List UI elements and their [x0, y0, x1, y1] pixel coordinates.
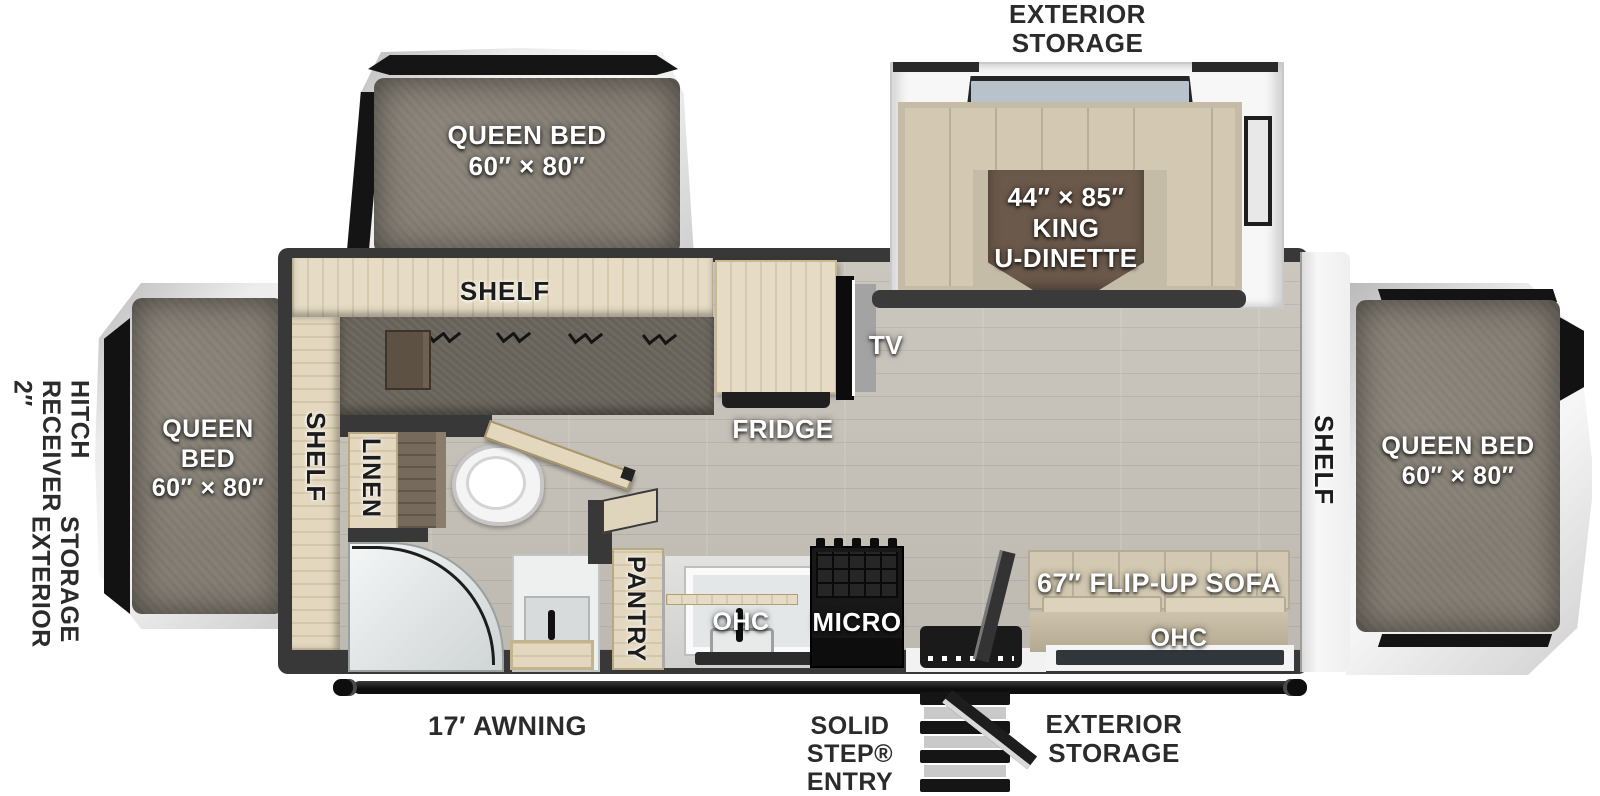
entry-mat — [920, 626, 1022, 668]
dinette-left-bench — [905, 108, 973, 286]
awning-label: 17′ AWNING — [425, 712, 590, 742]
dinette-right-bench — [1167, 108, 1235, 286]
toilet-bowl — [466, 456, 526, 510]
stove-grate — [816, 552, 898, 598]
dinette-label: 44″ × 85″ KING U-DINETTE — [978, 182, 1154, 274]
bath-step-box — [510, 640, 594, 670]
slide-roof-edge-left — [893, 62, 979, 72]
tent-bed-top-window-band — [368, 55, 678, 75]
floorplan-canvas: 2″ RECEIVER HITCH EXTERIOR STORAGE EXTER… — [0, 0, 1600, 796]
hitch-storage-label: EXTERIOR STORAGE — [26, 516, 90, 676]
tent-bed-top-label: QUEEN BED 60″ × 80″ — [374, 120, 680, 181]
awning-cap-right — [1283, 679, 1307, 696]
tent-bed-front-label: QUEEN BED 60″ × 80″ — [132, 415, 284, 504]
left-shelf-label: SHELF — [300, 412, 331, 502]
tv-screen-edge — [852, 280, 855, 396]
tent-bed-rear-window-bottom — [1378, 634, 1552, 647]
fridge-base — [722, 392, 830, 408]
tent-bed-front-window — [104, 318, 130, 614]
pantry-label: PANTRY — [621, 556, 650, 662]
sofa-ohc-label: OHC — [1138, 624, 1220, 654]
sofa-label: 67″ FLIP-UP SOFA — [1030, 568, 1288, 600]
entry-mat-treads — [928, 656, 1014, 661]
fridge-label: FRIDGE — [718, 414, 848, 445]
fridge-cabinet — [715, 260, 837, 394]
slide-window — [1244, 116, 1272, 226]
slide-threshold — [872, 290, 1246, 308]
kitchen-ohc-label: OHC — [700, 608, 782, 638]
awning-rail — [353, 681, 1293, 694]
linen-label: LINEN — [356, 438, 385, 518]
micro-base — [812, 638, 902, 666]
tv-label: TV — [856, 330, 916, 361]
solid-step-entry-label: SOLID STEP® ENTRY — [790, 712, 910, 796]
bath-cabinet — [398, 432, 446, 528]
rear-shelf-label: SHELF — [1308, 415, 1339, 505]
wardrobe — [385, 330, 431, 390]
exterior-storage-bottom-label: EXTERIOR STORAGE — [1023, 710, 1205, 767]
tent-bed-rear-label: QUEEN BED 60″ × 80″ — [1356, 432, 1560, 491]
exterior-storage-top-label: EXTERIOR STORAGE — [985, 0, 1170, 57]
kitchen-ohc-rail — [666, 594, 798, 605]
bath-faucet — [548, 610, 555, 640]
micro-label: MICRO — [810, 607, 904, 638]
top-shelf-label: SHELF — [440, 276, 570, 307]
bath-wall-mid — [348, 528, 428, 542]
slide-roof-edge-right — [1192, 62, 1278, 72]
awning-cap-left — [333, 679, 357, 696]
